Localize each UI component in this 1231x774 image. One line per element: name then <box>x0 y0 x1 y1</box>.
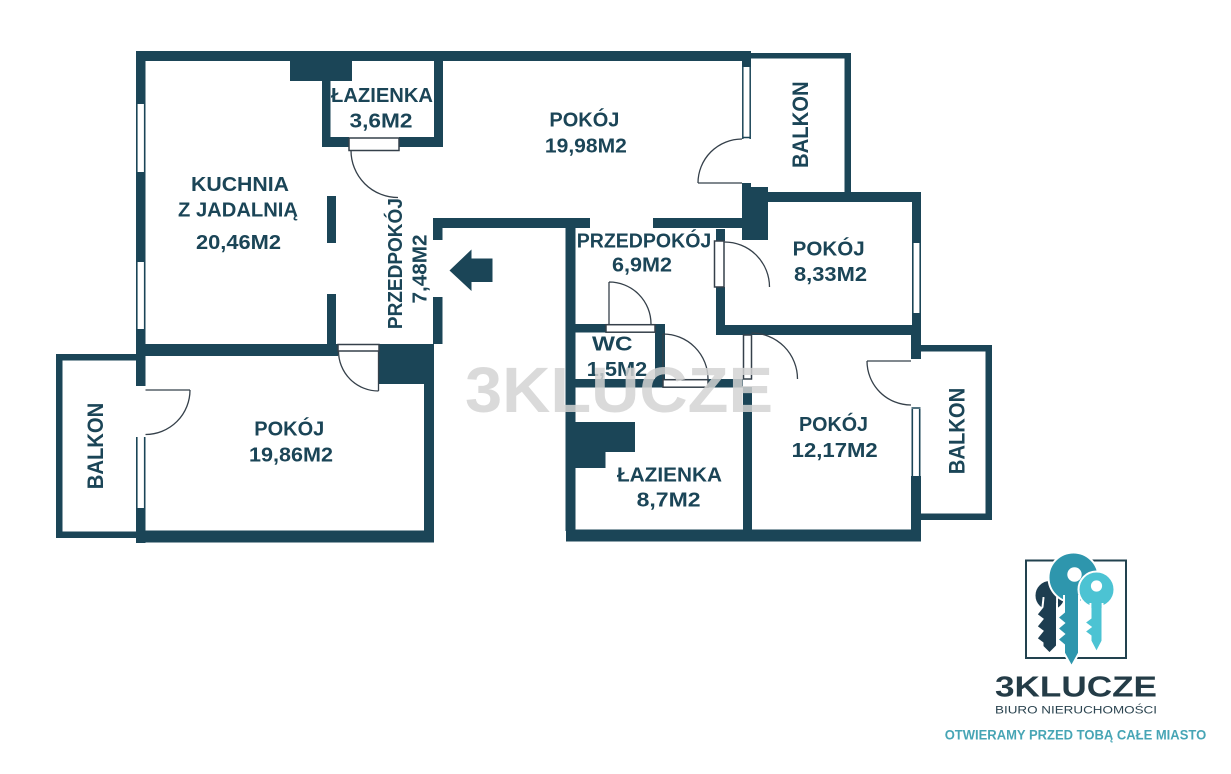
svg-text:BALKON: BALKON <box>788 81 813 168</box>
svg-text:WC: WC <box>592 334 633 356</box>
svg-text:8,33M2: 8,33M2 <box>794 264 867 286</box>
svg-text:PRZEDPOKÓJ: PRZEDPOKÓJ <box>577 229 712 253</box>
svg-text:BALKON: BALKON <box>83 403 108 490</box>
svg-text:8,7M2: 8,7M2 <box>637 490 701 512</box>
svg-text:20,46M2: 20,46M2 <box>196 232 281 254</box>
svg-text:12,17M2: 12,17M2 <box>792 440 878 462</box>
svg-text:3KLUCZE: 3KLUCZE <box>995 672 1157 704</box>
svg-text:BALKON: BALKON <box>945 388 970 475</box>
svg-text:POKÓJ: POKÓJ <box>549 107 619 131</box>
svg-text:Z JADALNIĄ: Z JADALNIĄ <box>178 200 298 222</box>
svg-text:PRZEDPOKÓJ: PRZEDPOKÓJ <box>383 198 407 329</box>
svg-text:19,86M2: 19,86M2 <box>249 444 333 466</box>
svg-text:POKÓJ: POKÓJ <box>793 237 865 261</box>
svg-text:7,48M2: 7,48M2 <box>410 235 432 304</box>
svg-text:ŁAZIENKA: ŁAZIENKA <box>331 85 433 107</box>
svg-text:3,6M2: 3,6M2 <box>350 111 413 133</box>
svg-text:POKÓJ: POKÓJ <box>799 412 868 436</box>
svg-text:KUCHNIA: KUCHNIA <box>191 174 289 196</box>
svg-text:6,9M2: 6,9M2 <box>612 254 672 276</box>
svg-text:BIURO NIERUCHOMOŚCI: BIURO NIERUCHOMOŚCI <box>995 704 1157 717</box>
svg-text:ŁAZIENKA: ŁAZIENKA <box>617 465 722 487</box>
svg-text:OTWIERAMY PRZED TOBĄ CAŁE MIAS: OTWIERAMY PRZED TOBĄ CAŁE MIASTO <box>945 727 1206 742</box>
svg-text:POKÓJ: POKÓJ <box>254 417 324 441</box>
svg-text:19,98M2: 19,98M2 <box>545 136 627 158</box>
svg-text:3KLUCZE: 3KLUCZE <box>465 354 773 426</box>
